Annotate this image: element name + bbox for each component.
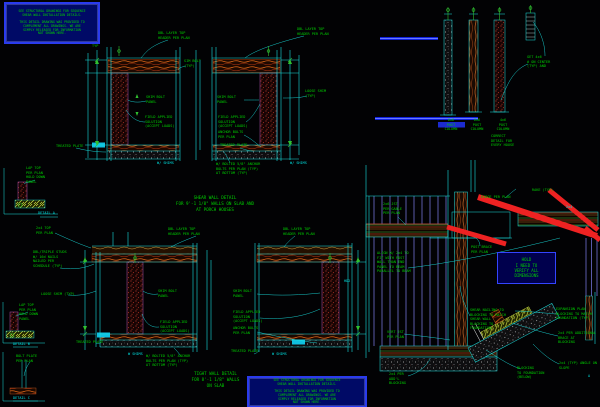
label-studs-note: DBL/TRIPLE STUDS W/ 16d NAILS NAILED PER… [33,250,67,268]
detail-b-label: DETAIL B [13,342,30,347]
label-hd2: HD2 [344,279,350,284]
structural-note-box-bottom: SEE STRUCTURAL DRAWINGS FOR SEQUENCE SHE… [247,376,367,407]
label-w-shims-3: W SHIMS [128,352,143,357]
label-post-brace: POST BRACE PER PLAN [471,245,492,254]
label-loose-shim: LOOSE SHIM (TYP) [305,89,326,98]
label-field-applied-2: FIELD APPLIED SOLUTION (ACCEPT LOADS) [218,115,248,129]
label-rake: RAKE (TYP) [532,188,553,193]
label-vert-jst: VERT JST PER PLAN [387,330,404,339]
detail-c-note: BOLT PLATE PER PLAN [16,354,37,363]
label-addtl-blocking: 2x4 PER ADD'L BLOCKING [389,372,406,386]
shear-wall-detail-1 [85,47,200,161]
label-align-note: ALIGN W/ 2x4 TO FIT WITH POST WALL THAN … [377,251,411,274]
label-field-applied-3: FIELD APPLIED SOLUTION (ACCEPT LOADS) [160,320,190,334]
detail-a-label: DETAIL A [38,211,55,216]
label-shim-bolt-4: SHIM BOLT PANEL [233,289,252,298]
label-w-shims-2: W/ SHIMS [290,161,307,166]
label-w-shims-1: W/ SHIMS [157,161,174,166]
label-shear-nailing-note: SHEAR NAILING TO BLOCKING TO MATCH SHEAR… [470,308,506,331]
label-iso-foundation: BLOCKING TO FOUNDATION (BELOW) [517,366,544,380]
label-header-3: DBL LAYER TOP HEADER PER PLAN [168,227,200,236]
structural-note-box-top: SEE STRUCTURAL DRAWINGS FOR SEQUENCE SHE… [4,2,100,44]
label-correct-detail: CORRECT DETAIL FOR EVERY HOUSE [491,134,514,148]
label-sill-note-bottom: W/ BOLTED 5/8" ANCHOR BOLTS PER PLAN (TY… [146,354,190,368]
label-w-shims-4: W SHIMS [272,352,287,357]
label-post-column-1: 6x6 POST COLUMN [438,118,464,132]
label-post-column-3: 4x6 POST COLUMN [490,118,516,132]
label-on-center-note: GET 4x6 # ON CENTER (TYP) AND [527,55,550,69]
label-treated-plate-3: TREATED PLATE [76,340,103,345]
label-typ: TYP [92,44,98,49]
label-header-2: DBL LAYER TOP HEADER PER PLAN [297,27,329,36]
label-shim-bolt-2: SHIM BOLT PANEL [217,95,236,104]
label-header-1: DBL LAYER TOP HEADER PER PLAN [158,31,190,40]
label-2x4: 2x4 [566,205,572,210]
label-mini-a: A [588,374,590,379]
label-treated-plate-4: TREATED PLATE [231,349,258,354]
label-loose-shim-bl: LOOSE SHIM (TYP) [41,292,75,297]
label-anchor-bolts-2: ANCHOR BOLTS PER PLAN [218,130,243,139]
label-field-applied-4: FIELD APPLIED SOLUTION (ACCEPT LOADS) [233,310,263,324]
label-shim-bolt-3: SHIM BOLT PANEL [158,289,177,298]
label-iso-expansion: EXPANSION PLAN BLOCKING TO MATCH FOUNDAT… [556,307,592,321]
detail-c-label: DETAIL C [13,396,30,401]
label-post-column-2: 6x6 POST COLUMN [464,118,490,132]
cad-linework [0,0,600,407]
label-shim-bolt-1: SHIM BOLT PANEL [146,95,165,104]
label-sim-bolt-top: SIM BOLT (TYP) [184,59,201,68]
shear-wall-title: SHEAR WALL DETAIL FOR 9'-1 1/8" WALLS ON… [145,195,285,213]
label-treated-plate-1: TREATED PLATE [56,144,83,149]
detail-b-note: LAP TOP PER PLAN HOLD DOWN PANEL [19,303,38,321]
label-top-plate-3: 2x4 TOP PER PLAN [36,226,53,235]
hold-dimensions-box: HOLD I NEED TO VERIFY ALL DIMENSIONS [497,252,556,284]
label-header-4: DBL LAYER TOP HEADER PER PLAN [283,227,315,236]
cad-viewport: SEE STRUCTURAL DRAWINGS FOR SEQUENCE SHE… [0,0,600,407]
tight-wall-title: TIGHT WALL DETAIL FOR 8'-1 1/8" WALLS ON… [168,371,263,389]
label-sill-note-top: W/ BOLTED 5/8" ANCHOR BOLTS PER PLAN (TY… [216,162,260,176]
label-anchor-bolts-4: ANCHOR BOLTS PER PLAN [233,326,258,335]
selected-lines-highlight[interactable] [375,39,478,128]
label-treated-plate-2: TREATED PLATE [220,143,247,148]
label-iso-brace: 2x4 PER ADDITIONAL BRACE AT BLOCKING [558,331,596,345]
label-field-applied-1: FIELD APPLIED SOLUTION (ACCEPT LOADS) [145,115,175,129]
detail-a-note: LAP TOP PER PLAN HOLD DOWN PANEL [26,166,45,184]
label-iso-angle: 2x4 (TYP) ANGLE ON SLOPE [559,361,597,370]
label-ridge: RIDGE PER PLAN [481,195,511,200]
label-jst-gable: 2x6 JST PER GABLE PER PLAN [383,202,402,216]
tight-wall-detail-3 [80,232,207,352]
